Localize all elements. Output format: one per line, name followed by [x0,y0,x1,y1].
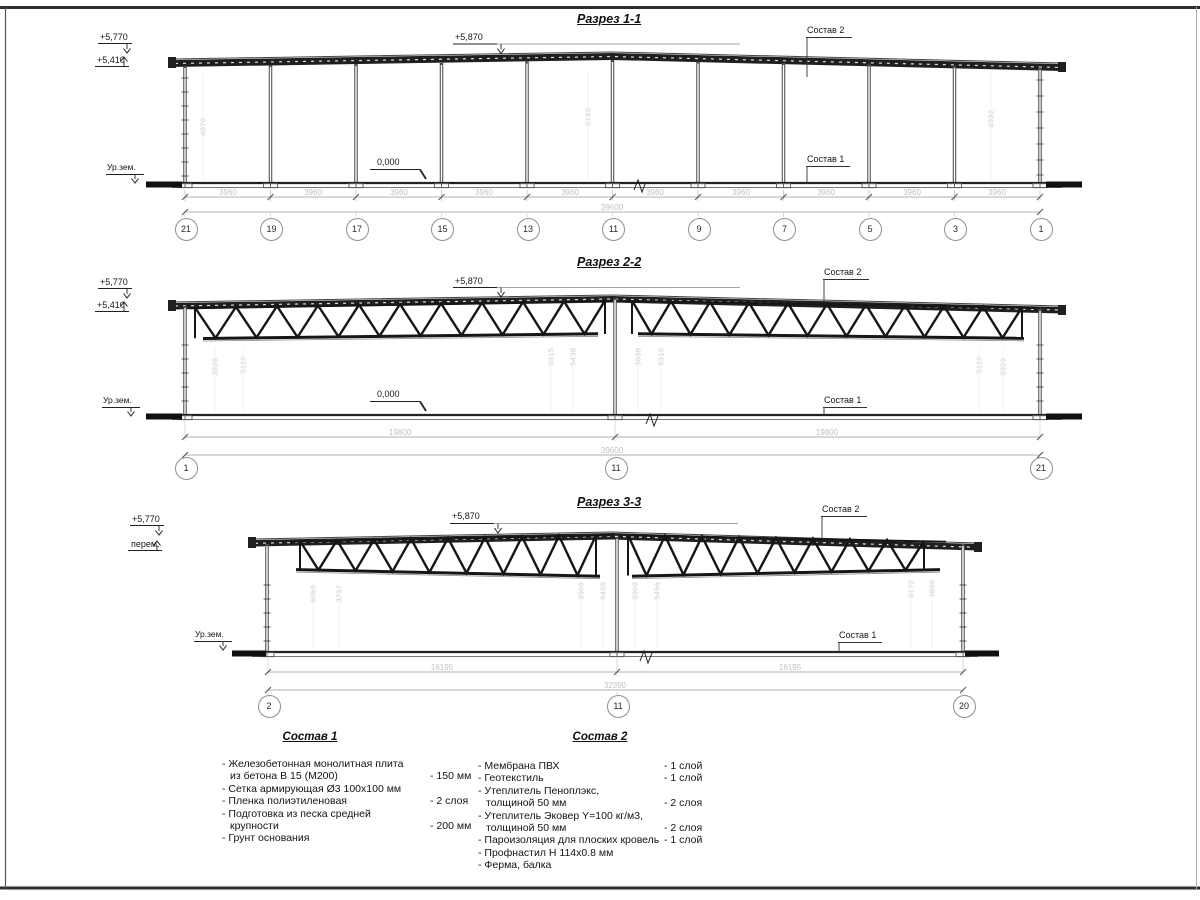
spec-item: - Утеплитель Пеноплэкс,толщиной 50 мм [478,785,664,810]
section-2-title: Разрез 2-2 [577,256,641,269]
spec-item: - Пароизоляция для плоских кровель [478,834,664,846]
height-dim: 3909 [577,577,585,605]
truss-left [290,535,610,579]
drawing-sheet: Разрез 1-1 +5,770 +5,410 +5,870 Состав 2… [0,0,1200,900]
bay-dimension: 3960 [887,189,937,197]
spec-item: - Утеплитель Эковер Y=100 кг/м3,толщиной… [478,810,664,835]
bay-dimension: 3960 [801,189,851,197]
elevation-mark: перем. [131,540,160,549]
span-dimension: 16195 [417,664,467,672]
spec-item: - Пленка полиэтиленовая [222,795,430,807]
elevation-mark: +5,410 [97,301,125,310]
spec-item-value: - 1 слой [664,772,722,784]
grid-bubble: 20 [953,695,976,718]
spec-item-value: - 2 слоя [664,797,722,809]
grid-bubble: 11 [605,457,628,480]
height-dim: 5059 [309,580,317,608]
grid-bubble: 1 [1030,218,1053,241]
zero-level-mark: 0,000 [377,390,400,399]
span-dimension: 19800 [375,429,425,437]
height-dim: 3859 [928,575,936,603]
spec-item-value: - 1 слой [664,834,722,846]
ground-hatch-left [232,651,266,657]
height-dim: 5172 [907,575,915,603]
column-height-dim: 4970 [199,113,207,141]
total-dimension: 32390 [590,682,640,690]
spec2-title: Состав 2 [540,732,660,744]
grid-bubble: 11 [607,695,630,718]
spec-item: - Подготовка из песка среднейкрупности [222,808,430,833]
grid-bubble: 17 [346,218,369,241]
layer2-callout: Состав 2 [807,26,844,35]
section-3-3-linework [128,517,999,696]
layer2-callout: Состав 2 [824,268,861,277]
elevation-mark: +5,770 [132,515,160,524]
total-dimension: 39600 [587,447,637,455]
spec2-list: - Мембрана ПВХ - 1 слой - Геотекстиль - … [478,760,722,872]
grid-bubble: 1 [175,457,198,480]
height-dim: 3929 [999,353,1007,381]
ground-hatch-left [146,414,182,420]
grid-bubble: 11 [602,218,625,241]
bay-dimension: 3960 [716,189,766,197]
ground-hatch-right [965,651,999,657]
bay-dimension: 3960 [374,189,424,197]
column-height-dim: 4932 [987,105,995,133]
height-dim: 3909 [631,577,639,605]
grid-bubble: 5 [859,218,882,241]
layer1-callout: Состав 1 [824,396,861,405]
height-dim: 5455 [653,577,661,605]
ground-hatch-right [1046,414,1082,420]
spec-item: - Геотекстиль [478,772,664,784]
height-dim: 3737 [335,580,343,608]
total-dimension: 39600 [587,204,637,212]
height-dim: 3838 [634,343,642,371]
section-3-title: Разрез 3-3 [577,496,641,509]
height-dim: 3529 [211,353,219,381]
elevation-mark: +5,870 [455,33,483,42]
section-1-title: Разрез 1-1 [577,13,641,26]
bay-dimension: 3960 [459,189,509,197]
spec-item: - Грунт основания [222,832,430,844]
grid-bubble: 13 [517,218,540,241]
height-dim: 5110 [975,351,983,379]
column-height-dim: 5195 [584,103,592,131]
elevation-mark: +5,770 [100,33,128,42]
ground-hatch-right [1046,182,1082,188]
spec-item-value: - 2 слоя [664,822,722,834]
grid-bubble: 21 [1030,457,1053,480]
grid-bubble: 3 [944,218,967,241]
elevation-mark: +5,870 [452,512,480,521]
layer1-callout: Состав 1 [807,155,844,164]
spec-item-value: - 1 слой [664,760,722,772]
truss-left [190,301,612,342]
spec-item: - Мембрана ПВХ [478,760,664,772]
span-dimension: 19800 [802,429,852,437]
elevation-mark: +5,870 [455,277,483,286]
grid-bubble: 7 [773,218,796,241]
grid-bubble: 9 [688,218,711,241]
ground-level-label: Ур.зем. [107,163,136,172]
height-dim: 5455 [599,577,607,605]
ground-hatch-left [146,182,182,188]
elevation-mark: +5,770 [100,278,128,287]
height-dim: 5315 [547,343,555,371]
elevation-mark: +5,410 [97,56,125,65]
bay-dimension: 3960 [630,189,680,197]
grid-bubble: 19 [260,218,283,241]
spec-item: - Железобетонная монолитная плитаиз бето… [222,758,430,783]
ground-level-label: Ур.зем. [103,396,132,405]
height-dim: 5315 [657,343,665,371]
bay-dimension: 3960 [972,189,1022,197]
layer1-callout: Состав 1 [839,631,876,640]
span-dimension: 16195 [765,664,815,672]
height-dim: 5438 [569,343,577,371]
height-dim: 5110 [239,351,247,379]
spec1-title: Состав 1 [250,732,370,744]
spec-item: - Ферма, балка [478,859,664,871]
grid-bubble: 21 [175,218,198,241]
spec-item: - Профнастил Н 114х0.8 мм [478,847,664,859]
zero-level-mark: 0,000 [377,158,400,167]
bay-dimension: 3960 [203,189,253,197]
grid-bubble: 15 [431,218,454,241]
layer2-callout: Состав 2 [822,505,859,514]
ground-level-label: Ур.зем. [195,630,224,639]
grid-bubble: 2 [258,695,281,718]
spec-item: - Сетка армирующая Ø3 100х100 мм [222,783,430,795]
bay-dimension: 3960 [288,189,338,197]
bay-dimension: 3960 [545,189,595,197]
spec1-list: - Железобетонная монолитная плитаиз бето… [222,758,494,845]
